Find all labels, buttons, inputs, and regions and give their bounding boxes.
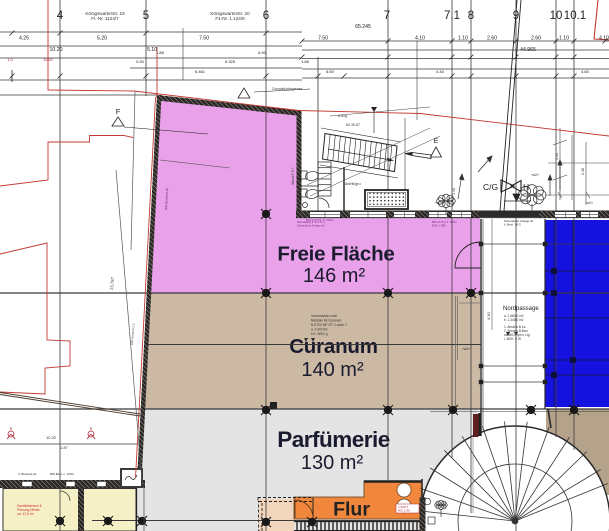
svg-text:It. Bestand alt: It. Bestand alt <box>18 472 37 476</box>
svg-text:10.1: 10.1 <box>564 10 586 22</box>
svg-text:Schaufenst.Anlage alt: Schaufenst.Anlage alt <box>297 224 324 228</box>
svg-text:F1-Nr. 1.124/8: F1-Nr. 1.124/8 <box>215 16 245 21</box>
svg-text:ca. 12.5 m²: ca. 12.5 m² <box>17 512 35 516</box>
svg-text:146 m²: 146 m² <box>303 265 366 287</box>
svg-text:1.88: 1.88 <box>156 50 165 55</box>
svg-text:BW 1.07741. S. WSG: BW 1.07741. S. WSG <box>306 218 333 222</box>
svg-text:130 m²: 130 m² <box>301 452 364 474</box>
svg-text:I. MZK, 0 W: I. MZK, 0 W <box>504 337 521 341</box>
svg-text:44.965: 44.965 <box>520 47 536 53</box>
svg-text:Mietplan Mi.Curanum: Mietplan Mi.Curanum <box>311 319 342 323</box>
svg-text:1.10: 1.10 <box>458 36 468 42</box>
svg-text:Wand F 9 0: Wand F 9 0 <box>291 167 295 185</box>
svg-text:1.0: 1.0 <box>7 58 12 62</box>
svg-text:7.50: 7.50 <box>199 36 209 42</box>
svg-text:2.60: 2.60 <box>487 36 497 42</box>
svg-text:8.50: 8.50 <box>326 69 335 74</box>
svg-text:4.10: 4.10 <box>415 36 425 42</box>
svg-text:4.40: 4.40 <box>436 69 445 74</box>
svg-text:10.02: 10.02 <box>43 58 53 62</box>
svg-text:1.10: 1.10 <box>452 188 456 195</box>
svg-text:6.325: 6.325 <box>225 59 236 64</box>
svg-text:Fl.-Nr. 1124/7: Fl.-Nr. 1124/7 <box>91 16 119 21</box>
svg-text:lt. Best. 48.5: lt. Best. 48.5 <box>504 223 521 227</box>
svg-text:Freie Fläche: Freie Fläche <box>277 243 394 266</box>
svg-text:7.50: 7.50 <box>318 36 328 42</box>
svg-text:»a2«: »a2« <box>435 201 443 205</box>
svg-text:2.38: 2.38 <box>581 168 585 175</box>
svg-text:7.1: 7.1 <box>444 10 460 22</box>
svg-text:7: 7 <box>384 10 390 22</box>
svg-text:4: 4 <box>57 10 64 22</box>
svg-text:10.32: 10.32 <box>46 435 57 440</box>
svg-text:Grundstücksgrenze: Grundstücksgrenze <box>272 87 302 91</box>
svg-text:5.20: 5.20 <box>97 36 107 42</box>
svg-text:6.461: 6.461 <box>195 69 206 74</box>
svg-text:1.87: 1.87 <box>60 445 69 450</box>
svg-text:Curanum: Curanum <box>289 335 378 358</box>
svg-text:1.10: 1.10 <box>555 153 559 160</box>
svg-text:4.90: 4.90 <box>486 311 491 320</box>
svg-text:E: E <box>434 138 439 145</box>
svg-text:65.245: 65.245 <box>355 24 371 30</box>
svg-text:B 5.702 MF GT / Laden 7: B 5.702 MF GT / Laden 7 <box>311 323 347 327</box>
svg-text:WC 1.96: WC 1.96 <box>398 509 410 513</box>
svg-text:Antritt/gru: Antritt/gru <box>345 182 361 186</box>
svg-text:»a2«: »a2« <box>531 173 539 177</box>
svg-text:6.90: 6.90 <box>258 50 267 55</box>
svg-text:1.88: 1.88 <box>301 59 310 64</box>
svg-text:1.10: 1.10 <box>559 36 569 42</box>
svg-text:Innenausbau nach: Innenausbau nach <box>311 314 337 318</box>
svg-text:»a2«: »a2« <box>462 347 470 351</box>
svg-text:2.60: 2.60 <box>531 36 541 42</box>
svg-text:8: 8 <box>468 10 474 22</box>
svg-text:b. 1.345,0 m2: b. 1.345,0 m2 <box>504 318 524 322</box>
svg-text:BW-Best. n. WSG: BW-Best. n. WSG <box>50 472 75 476</box>
svg-text:5: 5 <box>143 10 149 22</box>
svg-text:H: H <box>523 182 529 192</box>
svg-text:10.20: 10.20 <box>50 47 63 53</box>
svg-text:4.10: 4.10 <box>599 36 609 42</box>
svg-text:10: 10 <box>550 10 563 22</box>
svg-text:6: 6 <box>263 10 269 22</box>
svg-text:Parfümerie: Parfümerie <box>277 427 390 452</box>
svg-text:F: F <box>116 107 121 116</box>
svg-text:9: 9 <box>513 10 519 22</box>
svg-text:4.25: 4.25 <box>19 36 29 42</box>
svg-text:84 30.87: 84 30.87 <box>346 123 360 127</box>
svg-text:140 m²: 140 m² <box>301 359 364 381</box>
svg-text:C/G: C/G <box>483 182 498 192</box>
svg-text:Flur: Flur <box>333 499 370 521</box>
svg-text:BSG 1.989: BSG 1.989 <box>432 224 446 228</box>
svg-text:4.60: 4.60 <box>581 69 590 74</box>
svg-text:Nordpassage: Nordpassage <box>503 306 539 312</box>
svg-text:0.30: 0.30 <box>136 59 145 64</box>
svg-text:a. 4.000 lfm: a. 4.000 lfm <box>311 328 328 332</box>
